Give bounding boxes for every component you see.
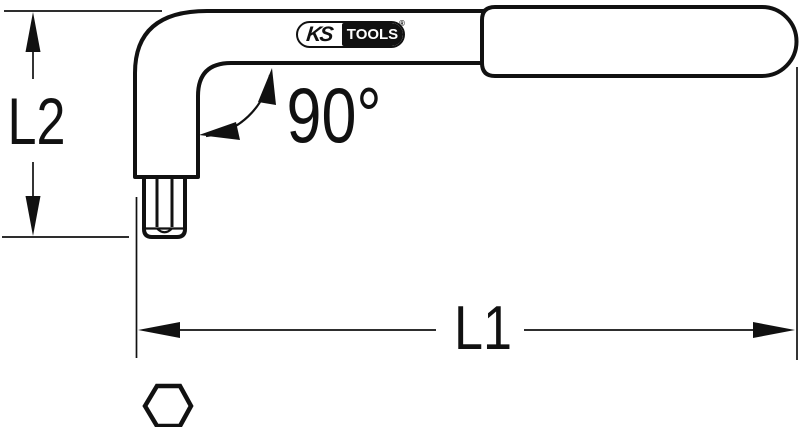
angle-arrowhead-lower: [199, 122, 240, 140]
angle-label: 90°: [287, 71, 382, 159]
angle-arc: [206, 75, 270, 136]
l2-arrowhead-down: [26, 196, 41, 236]
technical-drawing-canvas: L2 L1 90° KS TOOLS ®: [0, 0, 800, 427]
angle-annotation: [199, 68, 276, 140]
ks-tools-logo: KS TOOLS: [296, 21, 405, 48]
l2-arrowhead-up: [26, 12, 41, 52]
logo-ks-text: KS: [297, 23, 343, 46]
l1-label: L1: [454, 294, 512, 363]
registered-trademark-icon: ®: [399, 19, 405, 28]
l2-label: L2: [8, 84, 66, 158]
angle-arrowhead-upper: [258, 68, 276, 105]
line-art: L2 L1 90°: [0, 0, 800, 427]
hex-cross-section-icon: [145, 386, 191, 426]
tool-handle: [482, 7, 797, 76]
hex-tip: [144, 179, 185, 237]
logo-tools-text: TOOLS: [342, 23, 403, 46]
tool-body: [135, 7, 797, 237]
l1-arrowhead-right: [753, 322, 795, 338]
l1-arrowhead-left: [138, 322, 180, 338]
